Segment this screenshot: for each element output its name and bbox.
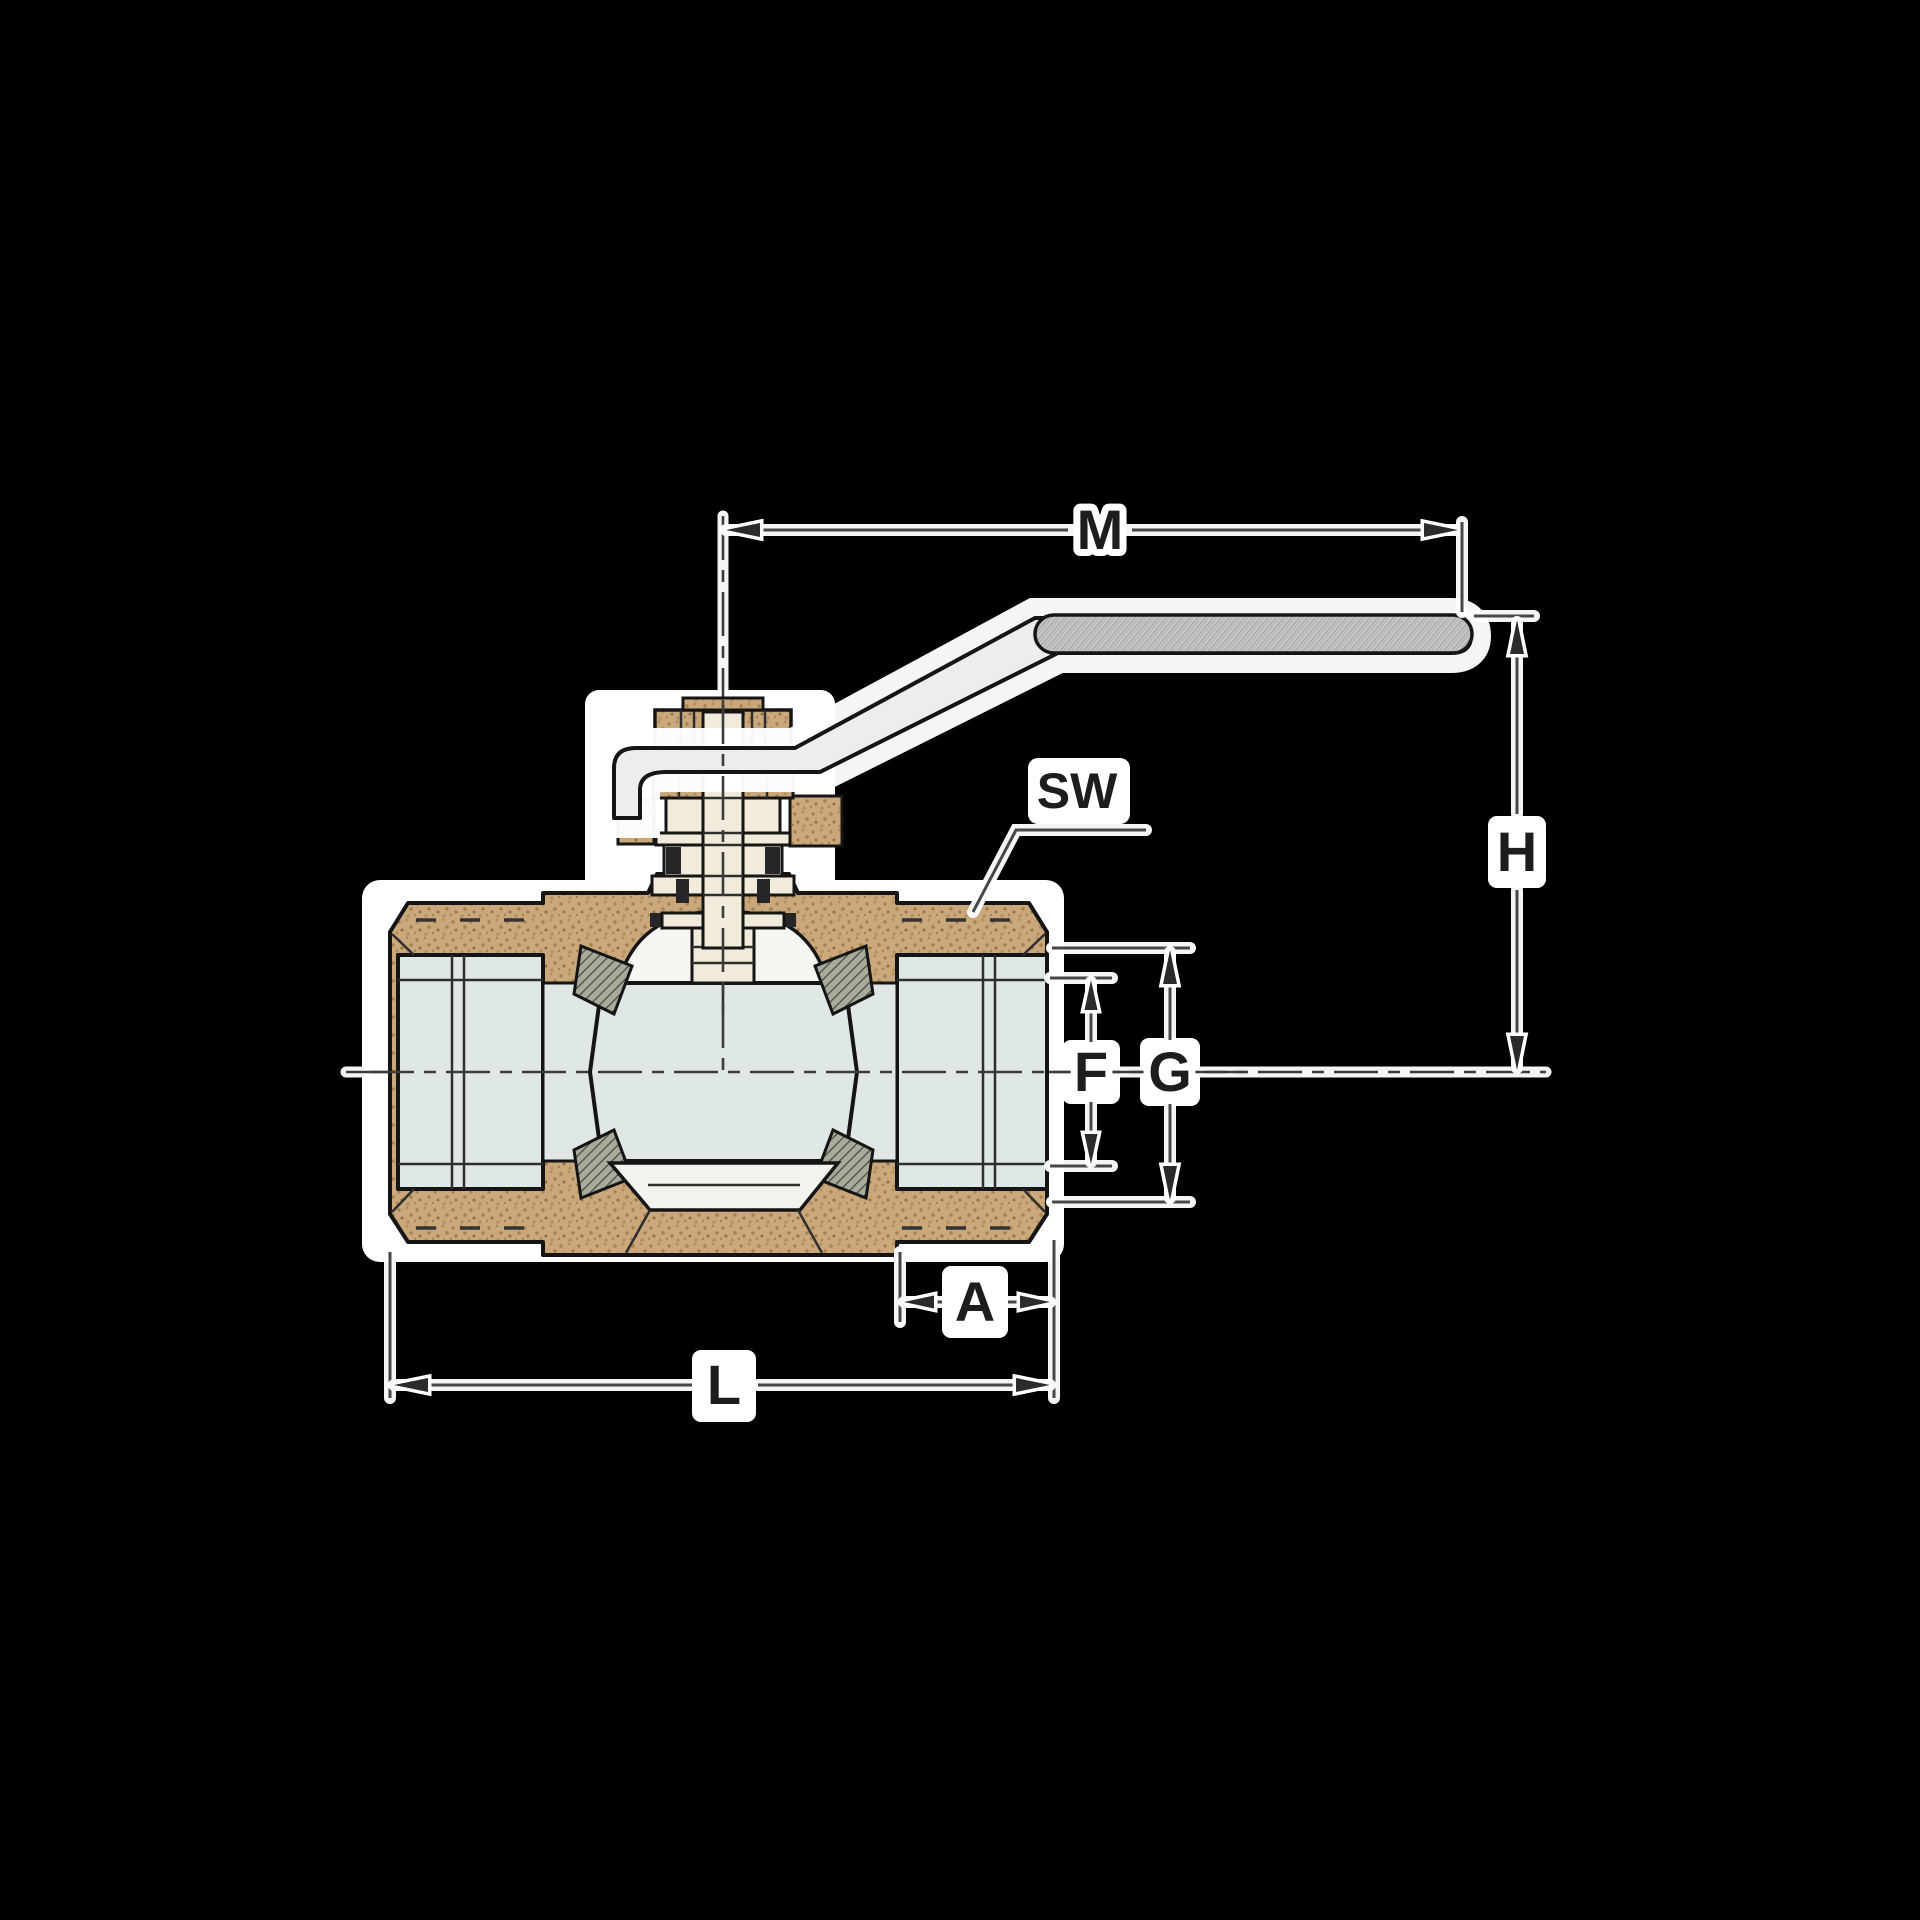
a-arrow-left [904,1296,934,1309]
dimension-label-h: H [1497,820,1537,883]
ball-valve-technical-drawing: M H G F [0,0,1920,1920]
dimension-label-sw: SW [1037,763,1118,819]
handle-grip [1035,615,1472,653]
dimension-a: A [900,1240,1054,1398]
dimension-label-m: M [1077,498,1124,561]
f-arrow-top [1085,980,1098,1010]
a-arrow-right [1020,1296,1050,1309]
bonnet-tab-right [790,796,842,846]
dimension-label-a: A [955,1270,995,1333]
dimension-m: M [726,498,1462,612]
valve-assembly [390,615,1472,1255]
dimension-label-l: L [707,1353,741,1416]
dimension-h: H [1474,616,1537,1070]
f-arrow-bottom [1085,1134,1098,1164]
drawing-canvas: M H G F [0,0,1920,1920]
dimension-label-f: F [1074,1040,1108,1103]
dimension-label-g: G [1148,1040,1192,1103]
